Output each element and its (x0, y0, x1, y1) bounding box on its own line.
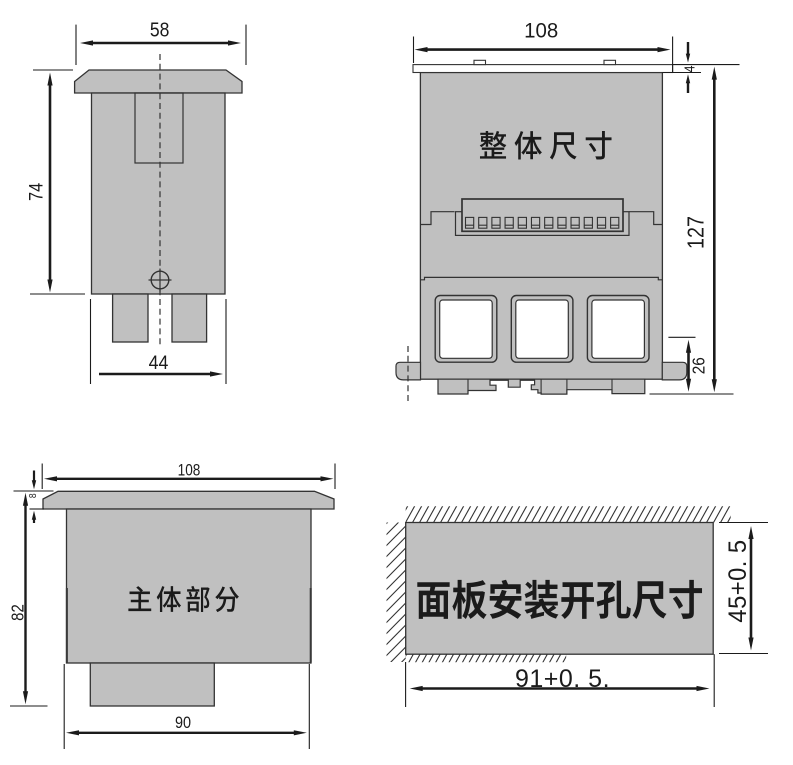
svg-text:74: 74 (25, 183, 47, 201)
svg-text:90: 90 (175, 714, 191, 732)
svg-text:26: 26 (688, 357, 708, 374)
svg-text:127: 127 (682, 216, 709, 249)
svg-text:91+0. 5.: 91+0. 5. (515, 665, 610, 693)
svg-text:58: 58 (150, 20, 170, 42)
svg-text:44: 44 (149, 351, 169, 373)
svg-text:4: 4 (682, 65, 698, 72)
svg-text:45+0. 5: 45+0. 5 (724, 539, 752, 622)
svg-text:108: 108 (178, 461, 201, 480)
svg-text:82: 82 (8, 604, 27, 621)
svg-text:108: 108 (524, 19, 558, 43)
svg-text:8: 8 (28, 493, 39, 498)
